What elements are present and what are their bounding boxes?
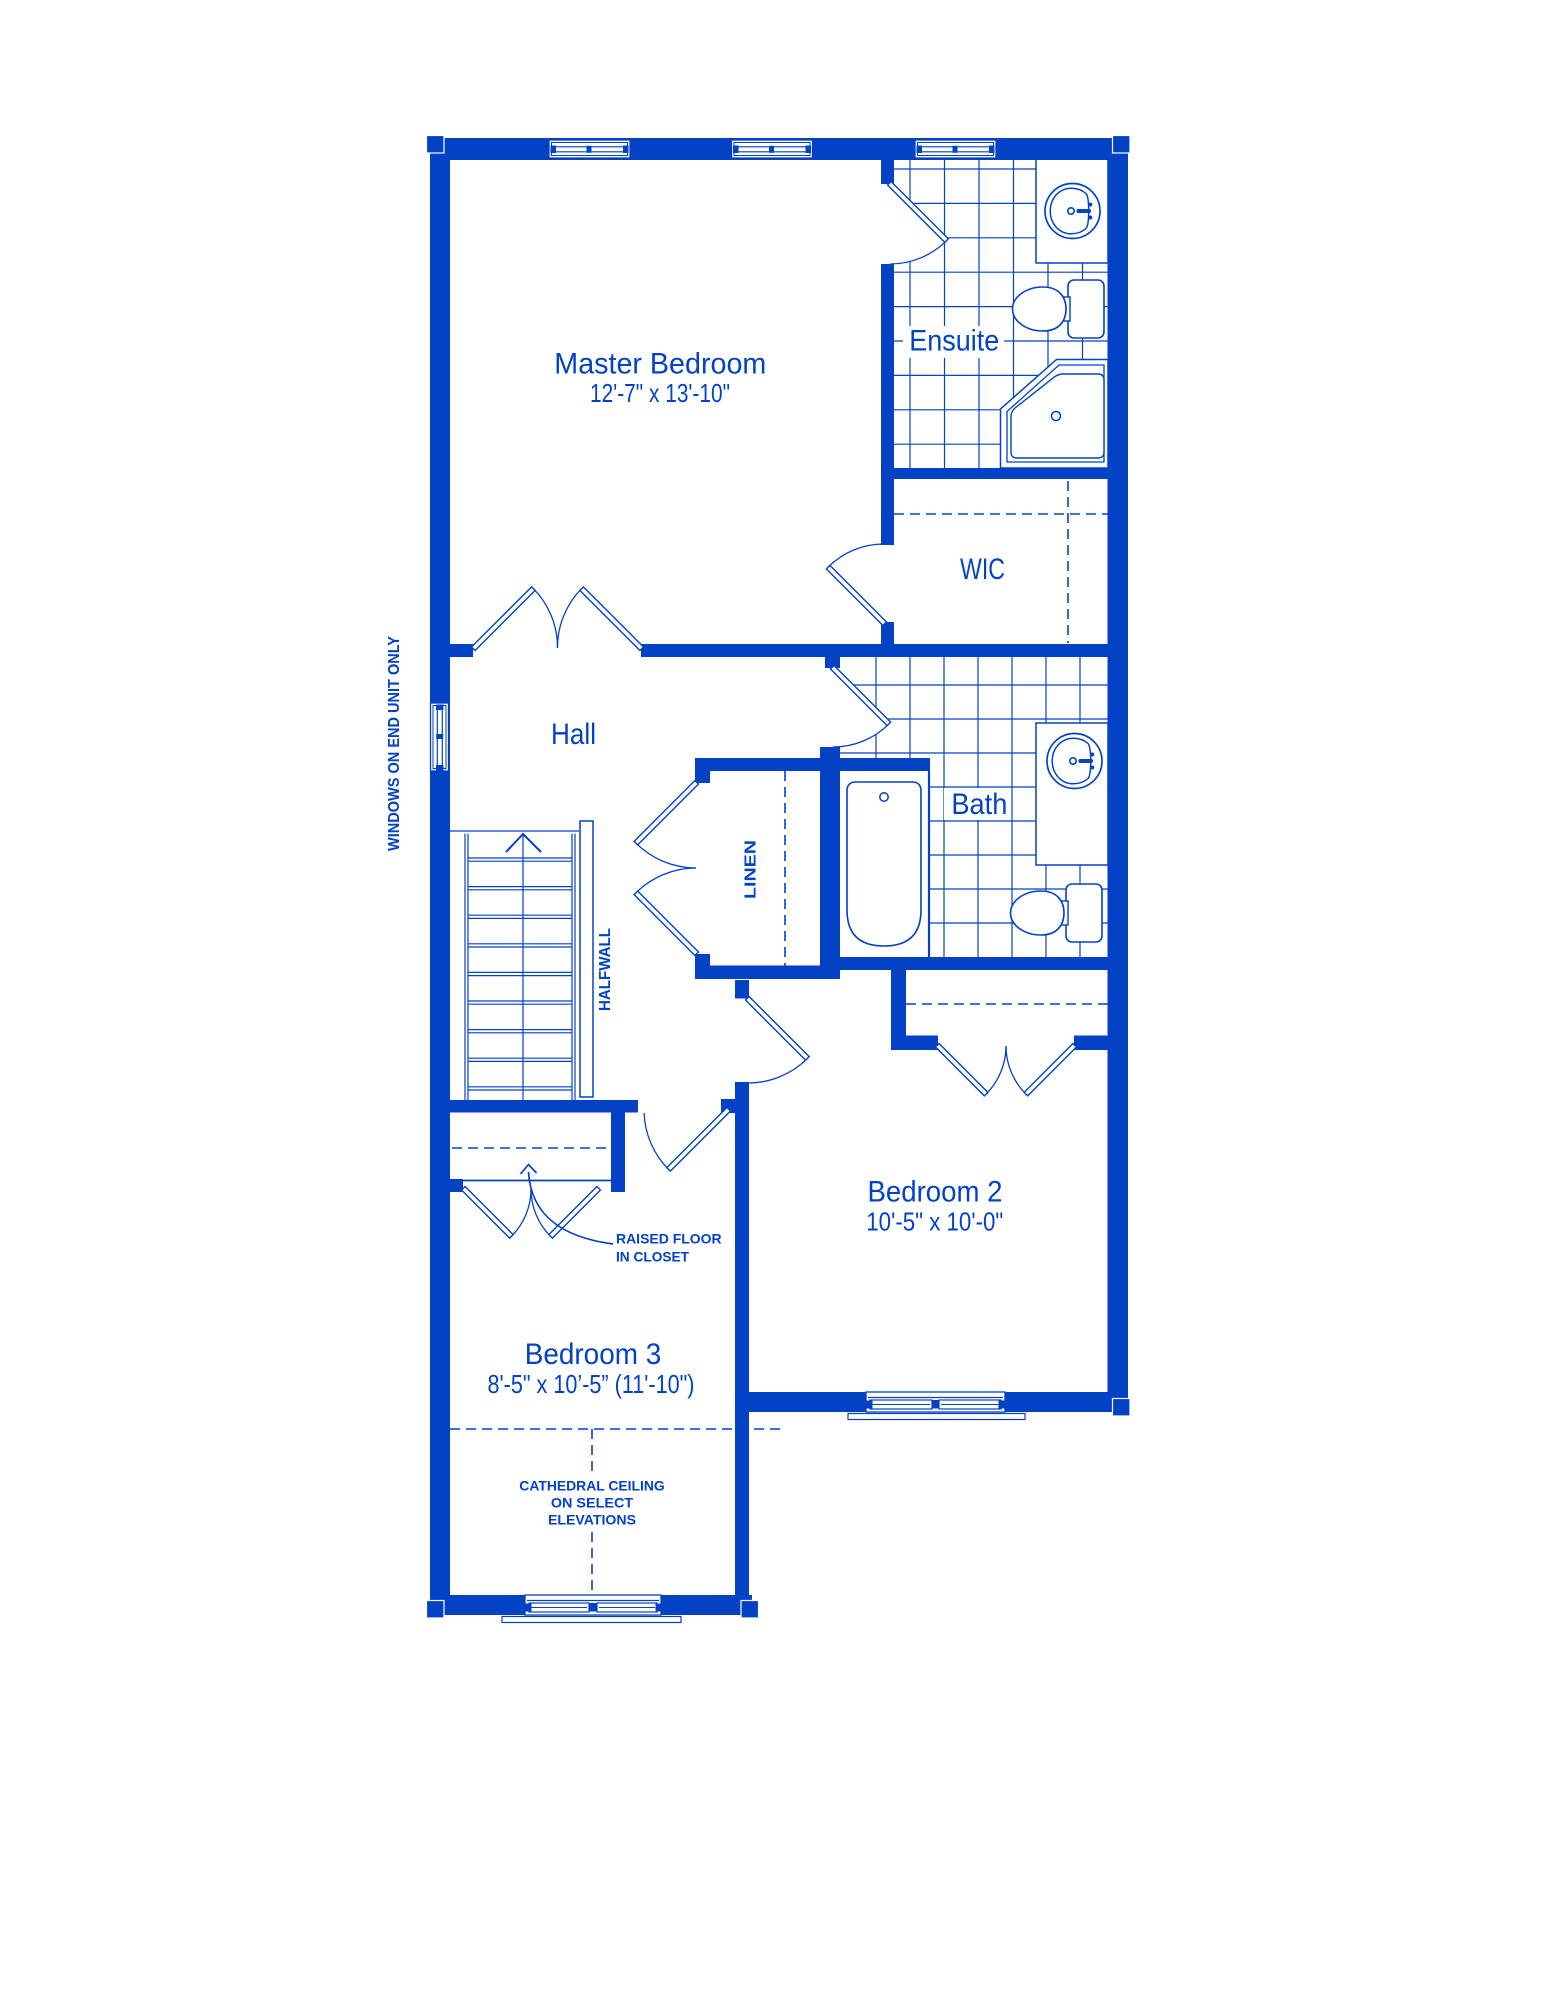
svg-text:Ensuite: Ensuite (909, 324, 999, 357)
svg-text:Bedroom 3: Bedroom 3 (525, 1338, 662, 1371)
svg-text:12'-7" x 13'-10": 12'-7" x 13'-10" (590, 378, 730, 408)
svg-text:HALFWALL: HALFWALL (597, 928, 614, 1011)
svg-text:CATHEDRAL CEILING: CATHEDRAL CEILING (519, 1478, 665, 1494)
svg-text:ELEVATIONS: ELEVATIONS (548, 1512, 636, 1528)
svg-text:WINDOWS ON END UNIT ONLY: WINDOWS ON END UNIT ONLY (386, 636, 403, 851)
svg-text:LINEN: LINEN (743, 840, 760, 899)
svg-text:Hall: Hall (551, 718, 596, 751)
svg-text:Bath: Bath (951, 788, 1007, 821)
svg-text:8'-5" x 10’-5” (11'-10"): 8'-5" x 10’-5” (11'-10") (488, 1369, 695, 1399)
svg-text:ON SELECT: ON SELECT (551, 1495, 634, 1511)
svg-text:IN CLOSET: IN CLOSET (616, 1249, 689, 1265)
svg-text:WIC: WIC (960, 553, 1005, 586)
svg-text:10'-5" x 10'-0": 10'-5" x 10'-0" (866, 1207, 1003, 1237)
svg-text:Bedroom 2: Bedroom 2 (868, 1176, 1003, 1209)
svg-text:Master Bedroom: Master Bedroom (554, 347, 766, 380)
svg-text:RAISED FLOOR: RAISED FLOOR (616, 1230, 722, 1246)
